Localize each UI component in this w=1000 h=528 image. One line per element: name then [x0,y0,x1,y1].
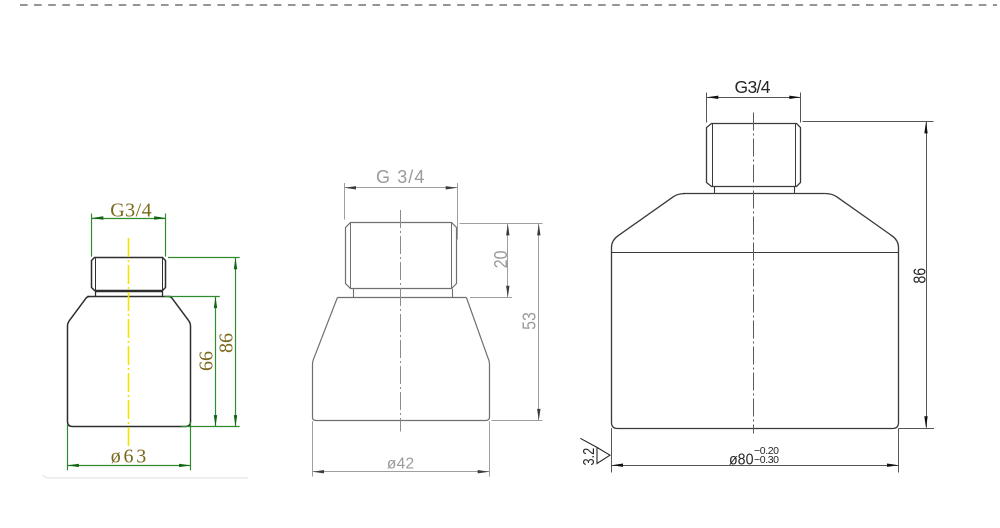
svg-text:20: 20 [491,251,511,269]
svg-text:86: 86 [909,268,929,284]
svg-text:ø42: ø42 [387,456,414,473]
svg-text:ø63: ø63 [111,446,147,468]
svg-text:G 3/4: G 3/4 [376,167,424,187]
svg-text:G3/4: G3/4 [735,77,771,97]
svg-text:66: 66 [195,351,217,371]
svg-text:ø80: ø80 [729,451,754,468]
svg-text:53: 53 [520,312,540,330]
svg-text:86: 86 [216,333,238,353]
svg-text:G3/4: G3/4 [110,200,151,222]
svg-text:3.2: 3.2 [581,448,598,466]
svg-text:−0.30: −0.30 [754,454,779,466]
